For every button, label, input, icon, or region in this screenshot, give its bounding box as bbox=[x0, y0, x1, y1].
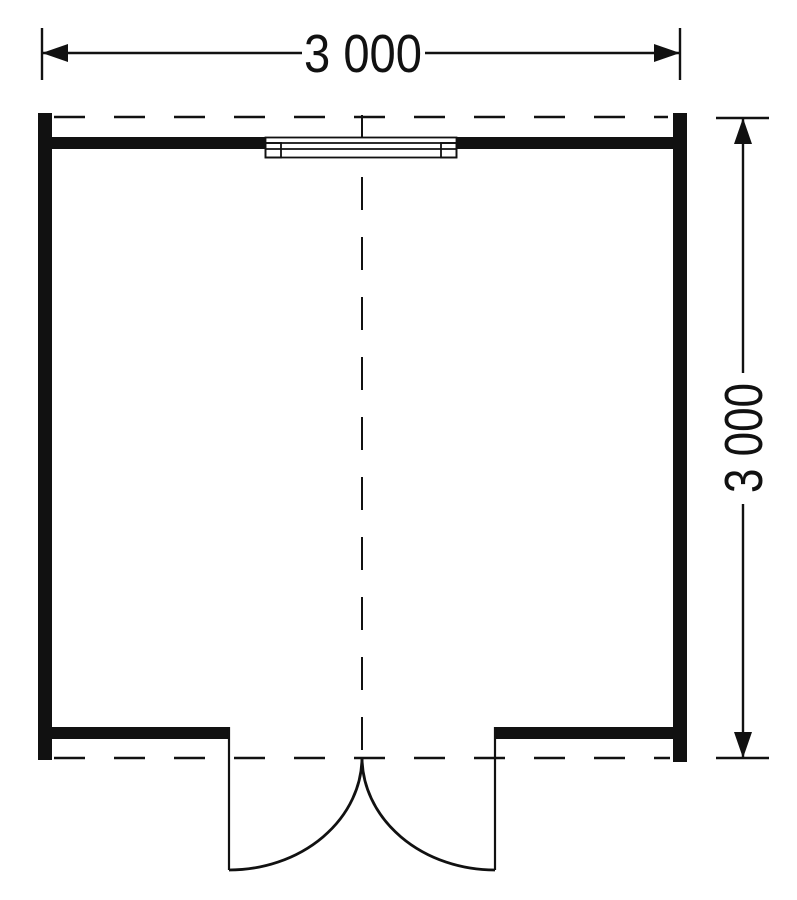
right-wall bbox=[673, 113, 687, 762]
top-dimension-arrow-right bbox=[654, 44, 680, 62]
top-dimension-label: 3 000 bbox=[304, 24, 422, 84]
right-dimension: 3 000 bbox=[714, 118, 774, 758]
floor-plan-drawing: 3 000 3 000 bbox=[0, 0, 797, 900]
right-dimension-arrow-bottom bbox=[734, 732, 752, 758]
door-swing-arc-left bbox=[229, 757, 362, 870]
right-dimension-arrow-top bbox=[734, 118, 752, 144]
left-wall bbox=[38, 113, 52, 760]
right-dimension-label: 3 000 bbox=[714, 383, 774, 493]
window-background bbox=[266, 138, 457, 158]
top-dimension: 3 000 bbox=[42, 24, 680, 84]
door-swing-arc-right bbox=[362, 757, 495, 870]
top-wall-left-segment bbox=[52, 137, 266, 149]
bottom-wall-left-segment bbox=[52, 727, 229, 739]
window bbox=[266, 138, 457, 158]
bottom-wall-right-segment bbox=[495, 727, 673, 739]
top-dimension-arrow-left bbox=[42, 44, 68, 62]
top-wall-right-segment bbox=[456, 137, 673, 149]
floor-plan-canvas: 3 000 3 000 bbox=[0, 0, 797, 900]
